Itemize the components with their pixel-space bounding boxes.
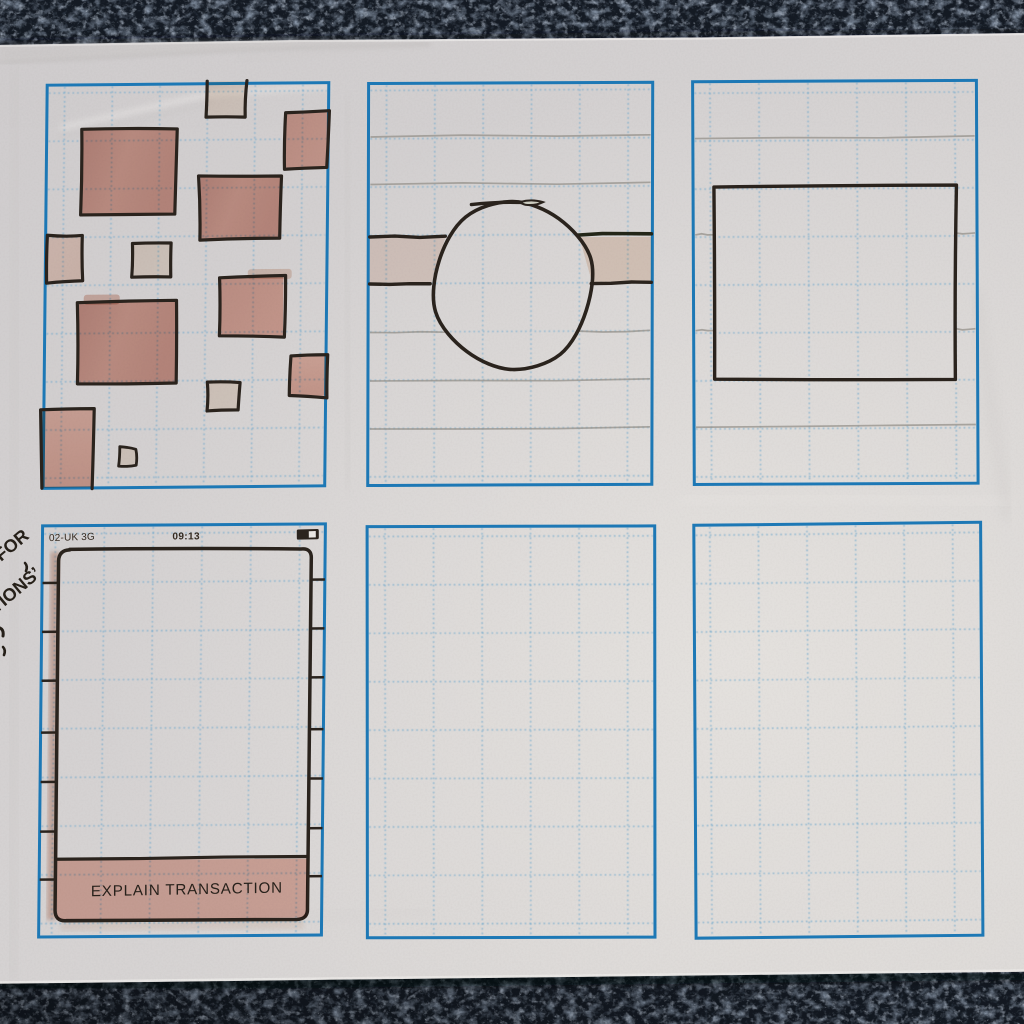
- svg-text:09:13: 09:13: [172, 531, 200, 542]
- svg-text:02-UK 3G: 02-UK 3G: [49, 532, 95, 545]
